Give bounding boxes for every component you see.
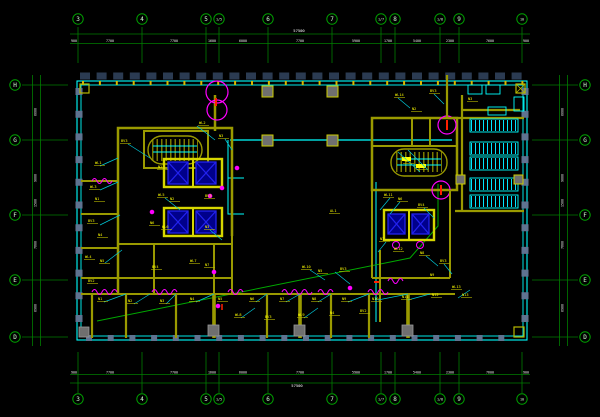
axis-bubble-label: 1/7 bbox=[378, 397, 384, 401]
device-tag-label: N4 bbox=[330, 311, 334, 315]
axis-bubble-label: 4 bbox=[140, 16, 144, 23]
device-tag-label: WL9 bbox=[298, 313, 305, 317]
axis-bubble-label: 5 bbox=[204, 16, 208, 23]
axis-bubble-label: F bbox=[13, 212, 17, 219]
axis-bubble-label: 6 bbox=[266, 16, 270, 23]
fire-hydrant-symbol bbox=[206, 81, 228, 120]
axis-bubble-label: 9 bbox=[457, 16, 461, 23]
dim-text: 7800 bbox=[34, 241, 38, 249]
device-tag-label: N12 bbox=[432, 293, 439, 297]
axis-bubble-label: H bbox=[583, 82, 587, 89]
exterior-curtain-wall bbox=[77, 76, 527, 340]
device-tag-label: N3 bbox=[468, 97, 472, 101]
axis-bubble-label: D bbox=[13, 334, 17, 341]
dim-text: 6600 bbox=[561, 108, 565, 116]
interior-column bbox=[294, 325, 305, 336]
axis-bubble-label: E bbox=[583, 277, 587, 284]
bottom-axis: 3451/5671/781/8910 bbox=[73, 352, 527, 404]
magenta-fixture-rows bbox=[92, 166, 403, 308]
total-dim-text: 57500 bbox=[291, 383, 303, 388]
dim-text: 7700 bbox=[170, 370, 178, 374]
device-tag-label: N1 bbox=[98, 297, 102, 301]
dim-text: 7800 bbox=[561, 241, 565, 249]
dim-text: 7700 bbox=[106, 39, 114, 43]
dim-text: 6000 bbox=[239, 370, 247, 374]
stair-right bbox=[391, 149, 447, 176]
device-tag-label: N3 bbox=[160, 299, 164, 303]
device-tag-label: WL1 bbox=[95, 161, 102, 165]
device-tag-label: WL13 bbox=[452, 285, 461, 289]
axis-bubble-label: 1/7 bbox=[378, 17, 384, 21]
device-tag-label: WL8 bbox=[235, 313, 242, 317]
left-axis: HGFED bbox=[10, 80, 68, 342]
device-tag-label: WL11 bbox=[384, 193, 393, 197]
device-tag-label: TD bbox=[404, 159, 408, 163]
device-tag-label: N8 bbox=[312, 297, 316, 301]
dim-text: 5900 bbox=[352, 370, 360, 374]
dim-text: 6600 bbox=[34, 108, 38, 116]
device-tag-label: N8 bbox=[420, 251, 424, 255]
axis-bubble-label: H bbox=[13, 82, 17, 89]
dim-text: 1600 bbox=[208, 39, 216, 43]
axis-bubble-label: G bbox=[13, 137, 17, 144]
device-tag-label: N10 bbox=[372, 297, 379, 301]
device-tag-label: BV2 bbox=[360, 309, 367, 313]
device-tag-label: BV4 bbox=[152, 265, 159, 269]
device-tag-label: N6 bbox=[398, 197, 402, 201]
dim-text: 7700 bbox=[296, 370, 304, 374]
axis-bubble-label: 9 bbox=[457, 396, 461, 403]
interior-column bbox=[402, 325, 413, 336]
axis-bubble-label: 8 bbox=[393, 16, 397, 23]
interior-column bbox=[262, 135, 273, 146]
dim-text: 2300 bbox=[446, 370, 454, 374]
device-tag-label: N7 bbox=[205, 263, 209, 267]
device-tag-label: N6 bbox=[150, 221, 154, 225]
device-tag-label: BV3 bbox=[88, 219, 95, 223]
interior-column bbox=[514, 175, 523, 184]
device-tag-label: BV3 bbox=[265, 315, 272, 319]
device-tag-label: WL14 bbox=[395, 93, 404, 97]
dim-text: 900 bbox=[71, 370, 77, 374]
dim-text: 6900 bbox=[34, 304, 38, 312]
axis-bubble-label: F bbox=[583, 212, 587, 219]
device-tag-label: N6 bbox=[250, 297, 254, 301]
interior-column bbox=[327, 135, 338, 146]
device-tag-label: N1 bbox=[95, 197, 99, 201]
axis-bubble-label: E bbox=[13, 277, 17, 284]
axis-bubble-label: 6 bbox=[266, 396, 270, 403]
device-tags: WL1BV3N2WL2N3WL3N1BV3N4WL4N5BV2WL5N2BV3N… bbox=[84, 89, 478, 319]
right-axis: HGFED bbox=[532, 80, 590, 342]
left-core bbox=[118, 81, 232, 294]
axis-bubble-label: 4 bbox=[140, 396, 144, 403]
dim-text: 1500 bbox=[34, 199, 38, 207]
device-tag-label: WL10 bbox=[302, 265, 311, 269]
device-tag-label: N5 bbox=[100, 259, 104, 263]
device-tag-label: WL5 bbox=[158, 193, 165, 197]
device-tag-label: N4 bbox=[190, 297, 194, 301]
axis-bubble-label: 10 bbox=[520, 397, 524, 401]
interior-column bbox=[327, 86, 338, 97]
device-tag-label: BV3 bbox=[430, 89, 437, 93]
device-tag-label: N3 bbox=[219, 134, 223, 138]
device-tag-label: WL7 bbox=[190, 259, 197, 263]
device-tag-label: N9 bbox=[430, 273, 434, 277]
dim-text: 7700 bbox=[106, 370, 114, 374]
dim-text: 5900 bbox=[352, 39, 360, 43]
axis-bubble-label: 1/8 bbox=[437, 397, 443, 401]
dim-text: 900 bbox=[523, 370, 529, 374]
dim-text: 900 bbox=[71, 39, 77, 43]
dim-text: 5400 bbox=[413, 39, 421, 43]
dim-text: 7600 bbox=[486, 370, 494, 374]
device-tag-label: BV3 bbox=[440, 259, 447, 263]
axis-bubble-label: 1/5 bbox=[216, 17, 222, 21]
device-tag-label: BV4 bbox=[418, 203, 425, 207]
dim-text: 1700 bbox=[384, 370, 392, 374]
total-dim-text: 57500 bbox=[293, 28, 305, 33]
device-tag-label: WL3 bbox=[90, 185, 97, 189]
device-tag-label: N9 bbox=[342, 297, 346, 301]
cad-floor-plan-viewport: 3451/5671/781/8910 3451/5671/781/8910 HG… bbox=[0, 0, 600, 417]
dim-text: 1500 bbox=[561, 199, 565, 207]
device-tag-label: WL4 bbox=[85, 255, 92, 259]
device-tag-label: N7 bbox=[280, 297, 284, 301]
axis-bubble-label: 10 bbox=[520, 17, 524, 21]
axis-bubble-label: D bbox=[583, 334, 587, 341]
axis-bubble-label: 3 bbox=[76, 396, 80, 403]
device-tag-label: BV3 bbox=[121, 139, 128, 143]
device-tag-label: N3 bbox=[205, 225, 209, 229]
device-tag-label: AL1 bbox=[330, 209, 337, 213]
dim-text: 2300 bbox=[446, 39, 454, 43]
interior-column bbox=[456, 175, 465, 184]
dim-text: 5400 bbox=[413, 370, 421, 374]
device-tag-label: N2 bbox=[170, 197, 174, 201]
device-tag-label: N2 bbox=[412, 107, 416, 111]
interior-column bbox=[262, 86, 273, 97]
dim-text: 9000 bbox=[561, 174, 565, 182]
device-tag-label: N4 bbox=[98, 233, 102, 237]
axis-bubble-label: 1/8 bbox=[437, 17, 443, 21]
device-tag-label: N11 bbox=[402, 295, 409, 299]
device-tag-label: N13 bbox=[462, 293, 469, 297]
corner-column bbox=[514, 327, 524, 337]
dim-text: 6000 bbox=[239, 39, 247, 43]
axis-bubble-label: 7 bbox=[330, 16, 334, 23]
axis-bubble-label: G bbox=[583, 137, 587, 144]
dim-text: 7700 bbox=[296, 39, 304, 43]
axis-bubble-label: 1/5 bbox=[216, 397, 222, 401]
device-tag-label: N2 bbox=[128, 299, 132, 303]
east-rack-room bbox=[447, 75, 524, 211]
device-tag-label: N1 bbox=[417, 165, 421, 169]
device-tag-label: N2 bbox=[158, 165, 162, 169]
device-tag-label: N7 bbox=[380, 237, 384, 241]
axis-bubble-label: 7 bbox=[330, 396, 334, 403]
axis-bubble-label: 3 bbox=[76, 16, 80, 23]
device-tag-label: WL2 bbox=[199, 121, 206, 125]
interior-column bbox=[208, 325, 219, 336]
device-tag-label: BV3 bbox=[205, 194, 212, 198]
device-tag-label: BV2 bbox=[88, 279, 95, 283]
dim-text: 9000 bbox=[34, 174, 38, 182]
dim-text: 1600 bbox=[208, 370, 216, 374]
dim-text: 900 bbox=[523, 39, 529, 43]
dim-text: 6900 bbox=[561, 304, 565, 312]
corner-column bbox=[79, 327, 89, 337]
device-tag-label: BV3 bbox=[340, 267, 347, 271]
device-tag-label: WL6 bbox=[162, 225, 169, 229]
dim-text: 1700 bbox=[384, 39, 392, 43]
right-core bbox=[372, 116, 457, 322]
floor-plan-drawing: 3451/5671/781/8910 3451/5671/781/8910 HG… bbox=[0, 0, 600, 417]
fire-hydrant-symbol bbox=[432, 116, 456, 199]
storage-racks bbox=[470, 119, 518, 208]
device-tag-label: N5 bbox=[318, 269, 322, 273]
axis-bubble-label: 8 bbox=[393, 396, 397, 403]
dim-text: 7700 bbox=[170, 39, 178, 43]
device-tag-label: WL12 bbox=[394, 247, 403, 251]
dim-text: 7600 bbox=[486, 39, 494, 43]
axis-bubble-label: 5 bbox=[204, 396, 208, 403]
device-tag-label: N5 bbox=[218, 297, 222, 301]
